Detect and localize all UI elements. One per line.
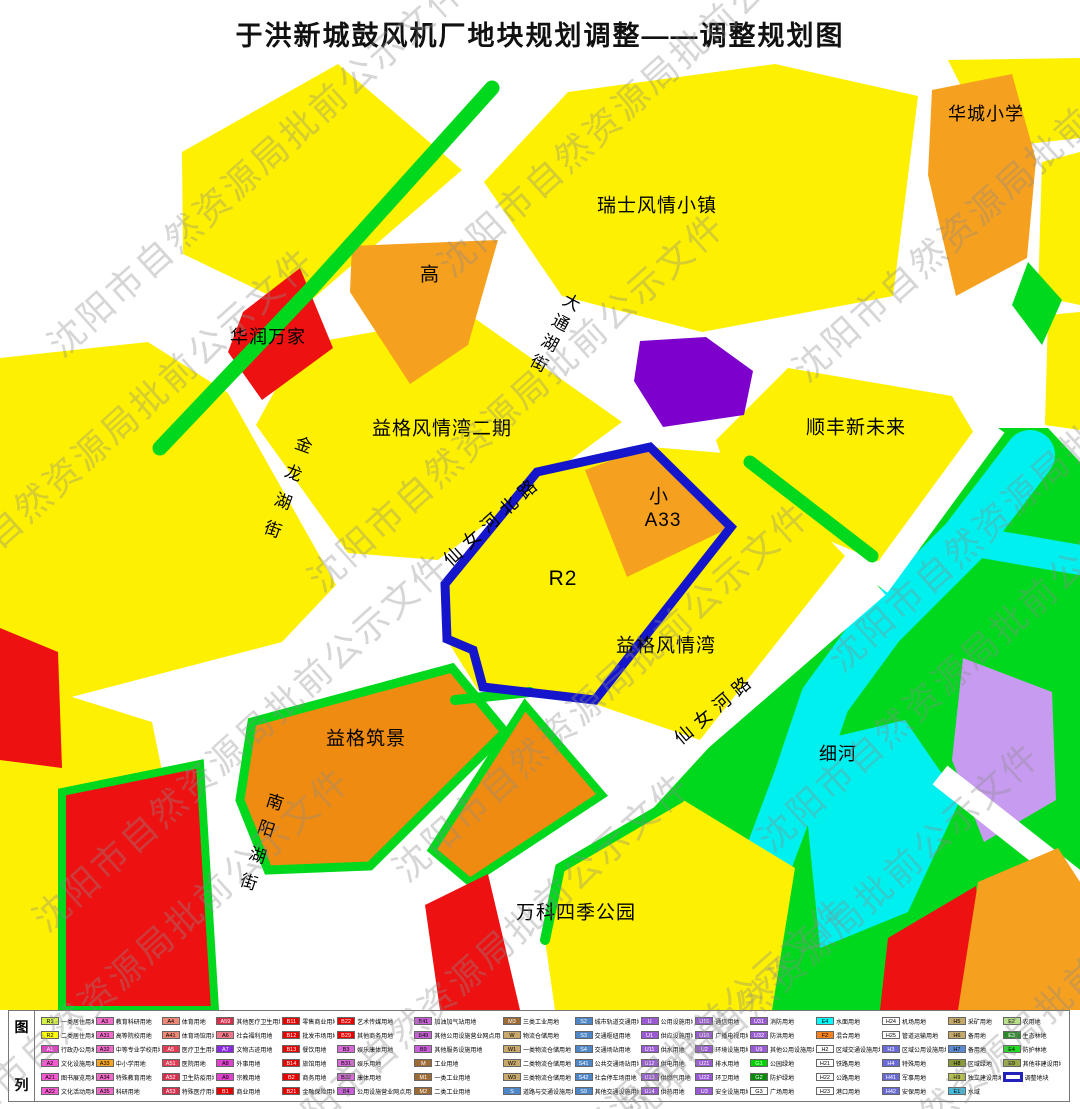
- legend-entry: S9其他交通设施用地: [575, 1084, 639, 1098]
- legend-entry: S42社会停车场用地: [575, 1070, 639, 1084]
- legend-entry: A41体育场馆用地: [162, 1028, 215, 1042]
- legend-entry: E4水面用地: [816, 1014, 880, 1028]
- legend-label: 特殊教育用地: [116, 1073, 152, 1082]
- legend-entry: A7文物古迹用地: [216, 1042, 280, 1056]
- legend-header: 图 列: [9, 1011, 35, 1101]
- legend-entry: U21排水用地: [695, 1056, 748, 1070]
- legend-entry: A5医疗卫生用地: [162, 1042, 215, 1056]
- legend-label: 防洪用地: [770, 1031, 794, 1040]
- legend-label: 城市轨道交通用地: [595, 1017, 639, 1026]
- legend-swatch: A51: [162, 1059, 180, 1067]
- legend-entry: E1水域: [948, 1084, 1001, 1098]
- label-huarun-wanjia: 华润万家: [230, 323, 306, 349]
- legend-swatch: H5: [948, 1017, 966, 1025]
- legend-label: 铁路用地: [836, 1059, 860, 1068]
- legend-entry: U公用设施用地: [641, 1014, 694, 1028]
- label-gao: 高: [420, 260, 440, 287]
- legend-label: 一类物流仓储用地: [523, 1045, 571, 1054]
- legend-label: 供应设施用地: [661, 1031, 694, 1040]
- legend-label: 文物古迹用地: [236, 1045, 272, 1054]
- legend-label: 一类居住用地: [61, 1017, 94, 1026]
- legend-label: 环境设施用地: [715, 1045, 748, 1054]
- legend-entry: A21图书展览用地: [41, 1070, 94, 1084]
- legend-label: 其他医疗卫生用地: [236, 1017, 280, 1026]
- legend-swatch: W2: [503, 1059, 521, 1067]
- legend-swatch: B49: [414, 1031, 432, 1039]
- legend-swatch: S42: [575, 1073, 593, 1081]
- legend-label: 三类物流仓储用地: [523, 1073, 571, 1082]
- legend-swatch: U16: [695, 1031, 713, 1039]
- legend-entry: B29其他商务用地: [337, 1028, 412, 1042]
- legend-entry: U2环境设施用地: [695, 1042, 748, 1056]
- legend-swatch: U15: [695, 1017, 713, 1025]
- legend-entry: H42安保用地: [882, 1084, 946, 1098]
- legend-swatch: B31: [337, 1059, 355, 1067]
- legend-label: 供燃气用地: [661, 1073, 691, 1082]
- legend-entry: U31消防用地: [750, 1014, 814, 1028]
- legend-entry: U14供热用地: [641, 1084, 694, 1098]
- legend-label: 卫生防疫用地: [182, 1073, 215, 1082]
- legend-label: 调整地块: [1025, 1073, 1049, 1082]
- legend-column-8: M3三类工业用地W物流仓储用地W1一类物流仓储用地W2二类物流仓储用地W3三类物…: [503, 1014, 573, 1099]
- legend-entry: B21金融保险用地: [282, 1084, 335, 1098]
- legend-entry: H21铁路用地: [816, 1056, 880, 1070]
- legend-label: 道路与交通设施用地: [523, 1087, 573, 1096]
- legend-entry: A33中小学用地: [96, 1056, 160, 1070]
- legend-entry: H9独立建设用地: [948, 1070, 1001, 1084]
- legend-swatch: U1: [641, 1031, 659, 1039]
- legend-swatch: B32: [337, 1073, 355, 1081]
- legend-label: 体育场馆用地: [182, 1031, 215, 1040]
- parcel-purple: [634, 337, 753, 427]
- legend-entry: A51医院用地: [162, 1056, 215, 1070]
- legend-entry: A3教育科研用地: [96, 1014, 160, 1028]
- legend-label: 医院用地: [182, 1059, 206, 1068]
- legend-label: 医疗卫生用地: [182, 1045, 215, 1054]
- legend-label: 商业用地: [236, 1087, 260, 1096]
- legend-entry: B31娱乐用地: [337, 1056, 412, 1070]
- legend-swatch: A21: [41, 1073, 59, 1081]
- legend-column-16: E2农用地E3生态林地E4防护林地E9其他非建设用地调整地块: [1003, 1014, 1061, 1099]
- legend-entry: A31高等院校用地: [96, 1028, 160, 1042]
- legend-swatch: G2: [750, 1073, 768, 1081]
- legend-swatch: B12: [282, 1031, 300, 1039]
- legend-swatch: U11: [641, 1045, 659, 1053]
- legend-entry: W3三类物流仓储用地: [503, 1070, 573, 1084]
- legend-label: 一类工业用地: [434, 1073, 470, 1082]
- legend-label: 采矿用地: [968, 1017, 992, 1026]
- legend-entry: B13餐饮用地: [282, 1042, 335, 1056]
- legend-label: 旅馆用地: [302, 1059, 326, 1068]
- legend-swatch: H42: [882, 1087, 900, 1095]
- legend-label: 物流仓储用地: [523, 1031, 559, 1040]
- legend-columns: R1一类居住用地R2二类居住用地A1行政办公用地A2文化设施用地A21图书展览用…: [35, 1011, 1069, 1101]
- legend-entry: B14旅馆用地: [282, 1056, 335, 1070]
- legend-swatch: H7: [948, 1045, 966, 1053]
- legend-entry: A4体育用地: [162, 1014, 215, 1028]
- legend-entry: H22公路用地: [816, 1070, 880, 1084]
- legend-entry: U32防洪用地: [750, 1028, 814, 1042]
- legend-swatch: F2: [816, 1031, 834, 1039]
- legend-entry: A9宗教用地: [216, 1070, 280, 1084]
- legend-label: 交通场站用地: [595, 1045, 631, 1054]
- legend-entry: M3三类工业用地: [503, 1014, 573, 1028]
- legend-entry: H4特殊用地: [882, 1056, 946, 1070]
- legend-entry: B32康体用地: [337, 1070, 412, 1084]
- legend-entry: E2农用地: [1003, 1014, 1061, 1028]
- label-ruishi-fengqing: 瑞士风情小镇: [597, 191, 717, 218]
- legend-entry: B4公用设施营业网点用地: [337, 1084, 412, 1098]
- legend-entry: S41公共交通场站用地: [575, 1056, 639, 1070]
- legend-column-3: A4体育用地A41体育场馆用地A5医疗卫生用地A51医院用地A52卫生防疫用地A…: [162, 1014, 215, 1099]
- page-title: 于洪新城鼓风机厂地块规划调整——调整规划图: [0, 14, 1080, 53]
- legend-label: 军事用地: [902, 1073, 926, 1082]
- legend-entry: U9其他公用设施用地: [750, 1042, 814, 1056]
- legend-entry: A32中等专业学校用地: [96, 1042, 160, 1056]
- legend-label: 安全设施用地: [715, 1087, 748, 1096]
- legend-label: 特殊医疗用地: [182, 1087, 215, 1096]
- legend-swatch: S2: [575, 1017, 593, 1025]
- legend: 图 列 R1一类居住用地R2二类居住用地A1行政办公用地A2文化设施用地A21图…: [8, 1010, 1070, 1102]
- legend-entry: H7备用地: [948, 1042, 1001, 1056]
- legend-entry: U13供燃气用地: [641, 1070, 694, 1084]
- legend-entry: W物流仓储用地: [503, 1028, 573, 1042]
- legend-label: 行政办公用地: [61, 1045, 94, 1054]
- legend-entry: H2区域交通设施用地: [816, 1042, 880, 1056]
- legend-swatch: R1: [41, 1017, 59, 1025]
- legend-swatch: S9: [575, 1087, 593, 1095]
- legend-entry: E9其他非建设用地: [1003, 1056, 1061, 1070]
- legend-column-7: B41加油加气站用地B49其他公用设施营业网点用地B9其他服务设施用地M工业用地…: [414, 1014, 501, 1099]
- legend-entry: E3生态林地: [1003, 1028, 1061, 1042]
- legend-column-12: U31消防用地U32防洪用地U9其他公用设施用地G1公园绿地G2防护绿地G3广场…: [750, 1014, 814, 1099]
- legend-column-10: U公用设施用地U1供应设施用地U11供水用地U12供电用地U13供燃气用地U14…: [641, 1014, 694, 1099]
- legend-label: 商务用地: [302, 1073, 326, 1082]
- legend-entry: H8区域绿地: [948, 1056, 1001, 1070]
- legend-swatch: G1: [750, 1059, 768, 1067]
- legend-label: 水面用地: [836, 1017, 860, 1026]
- legend-column-1: R1一类居住用地R2二类居住用地A1行政办公用地A2文化设施用地A21图书展览用…: [41, 1014, 94, 1099]
- legend-entry: S2城市轨道交通用地: [575, 1014, 639, 1028]
- legend-label: 公路用地: [836, 1073, 860, 1082]
- legend-entry: A52卫生防疫用地: [162, 1070, 215, 1084]
- legend-swatch: H3: [882, 1045, 900, 1053]
- legend-swatch: B1: [216, 1087, 234, 1095]
- legend-column-6: B22艺术传媒用地B29其他商务用地B3娱乐康体用地B31娱乐用地B32康体用地…: [337, 1014, 412, 1099]
- legend-label: 艺术传媒用地: [357, 1017, 393, 1026]
- legend-entry: F2混合用地: [816, 1028, 880, 1042]
- legend-swatch: U22: [695, 1073, 713, 1081]
- legend-entry: M2二类工业用地: [414, 1084, 501, 1098]
- legend-swatch: B2: [282, 1073, 300, 1081]
- legend-swatch: A1: [41, 1045, 59, 1053]
- legend-header-top: 图: [15, 1017, 29, 1037]
- legend-entry: A6社会福利用地: [216, 1028, 280, 1042]
- label-huacheng-xiaoxue: 华城小学: [948, 100, 1024, 126]
- legend-swatch: U3: [695, 1087, 713, 1095]
- legend-swatch: S3: [575, 1031, 593, 1039]
- legend-entry: A59其他医疗卫生用地: [216, 1014, 280, 1028]
- legend-label: 特殊用地: [902, 1059, 926, 1068]
- legend-swatch: M: [414, 1059, 432, 1067]
- legend-entry: U15通信用地: [695, 1014, 748, 1028]
- legend-label: 供电用地: [661, 1059, 685, 1068]
- legend-entry: B12批发市场用地: [282, 1028, 335, 1042]
- label-shunfeng: 顺丰新未来: [806, 413, 906, 440]
- legend-swatch: B13: [282, 1045, 300, 1053]
- legend-label: 防护林地: [1023, 1045, 1047, 1054]
- legend-swatch: H21: [816, 1059, 834, 1067]
- legend-swatch: H22: [816, 1073, 834, 1081]
- legend-label: 交通枢纽用地: [595, 1031, 631, 1040]
- legend-swatch: W: [503, 1031, 521, 1039]
- parcel-right-edge2: [1045, 312, 1080, 430]
- legend-entry: H3区域公用设施用地: [882, 1042, 946, 1056]
- legend-label: 排水用地: [715, 1059, 739, 1068]
- legend-swatch: A2: [41, 1059, 59, 1067]
- legend-label: 管道运输用地: [902, 1031, 938, 1040]
- legend-label: 防护绿地: [770, 1073, 794, 1082]
- legend-boundary-swatch: [1003, 1072, 1023, 1082]
- legend-swatch: M3: [503, 1017, 521, 1025]
- legend-entry: A2文化设施用地: [41, 1056, 94, 1070]
- legend-label: 二类居住用地: [61, 1031, 94, 1040]
- legend-entry: G3广场用地: [750, 1084, 814, 1098]
- legend-label: 零售商业用地: [302, 1017, 335, 1026]
- legend-entry: B41加油加气站用地: [414, 1014, 501, 1028]
- legend-label: 通信用地: [715, 1017, 739, 1026]
- legend-label: 二类工业用地: [434, 1087, 470, 1096]
- legend-swatch: B21: [282, 1087, 300, 1095]
- legend-swatch: H24: [882, 1017, 900, 1025]
- legend-entry: H23港口用地: [816, 1084, 880, 1098]
- legend-entry: M1一类工业用地: [414, 1070, 501, 1084]
- legend-swatch: A3: [96, 1017, 114, 1025]
- legend-entry: B9其他服务设施用地: [414, 1042, 501, 1056]
- legend-entry: 调整地块: [1003, 1070, 1061, 1084]
- legend-label: 供热用地: [661, 1087, 685, 1096]
- river-branch: [965, 540, 1080, 560]
- legend-label: 消防用地: [770, 1017, 794, 1026]
- legend-label: 娱乐康体用地: [357, 1045, 393, 1054]
- legend-label: 图书展览用地: [61, 1073, 94, 1082]
- legend-label: 公共交通场站用地: [595, 1059, 639, 1068]
- legend-entry: U12供电用地: [641, 1056, 694, 1070]
- legend-swatch: U32: [750, 1031, 768, 1039]
- legend-swatch: U9: [750, 1045, 768, 1053]
- legend-entry: A22文化活动用地: [41, 1084, 94, 1098]
- legend-label: 工业用地: [434, 1059, 458, 1068]
- legend-label: 娱乐用地: [357, 1059, 381, 1068]
- legend-label: 公用设施用地: [661, 1017, 694, 1026]
- label-yige2: 益格风情湾二期: [372, 414, 512, 441]
- legend-swatch: B3: [337, 1045, 355, 1053]
- legend-swatch: B14: [282, 1059, 300, 1067]
- legend-swatch: H41: [882, 1073, 900, 1081]
- legend-label: 区域绿地: [968, 1059, 992, 1068]
- legend-entry: R1一类居住用地: [41, 1014, 94, 1028]
- legend-label: 区域公用设施用地: [902, 1045, 946, 1054]
- legend-swatch: E3: [1003, 1031, 1021, 1039]
- legend-label: 外事用地: [236, 1059, 260, 1068]
- legend-label: 中等专业学校用地: [116, 1045, 160, 1054]
- legend-entry: S4交通场站用地: [575, 1042, 639, 1056]
- legend-label: 混合用地: [836, 1031, 860, 1040]
- legend-swatch: E1: [948, 1087, 966, 1095]
- legend-label: 供水用地: [661, 1045, 685, 1054]
- legend-label: 金融保险用地: [302, 1087, 335, 1096]
- legend-swatch: A34: [96, 1073, 114, 1081]
- legend-label: 康体用地: [357, 1073, 381, 1082]
- legend-column-2: A3教育科研用地A31高等院校用地A32中等专业学校用地A33中小学用地A34特…: [96, 1014, 160, 1099]
- legend-entry: H5采矿用地: [948, 1014, 1001, 1028]
- label-r2: R2: [549, 567, 578, 591]
- legend-label: 加油加气站用地: [434, 1017, 476, 1026]
- legend-entry: B2商务用地: [282, 1070, 335, 1084]
- legend-entry: S道路与交通设施用地: [503, 1084, 573, 1098]
- legend-label: 生态林地: [1023, 1031, 1047, 1040]
- legend-label: 文化活动用地: [61, 1087, 94, 1096]
- label-xihe: 细河: [819, 740, 857, 766]
- legend-label: 中小学用地: [116, 1059, 146, 1068]
- legend-swatch: U14: [641, 1087, 659, 1095]
- legend-swatch: H25: [882, 1031, 900, 1039]
- legend-swatch: B41: [414, 1017, 432, 1025]
- legend-swatch: E4: [1003, 1045, 1021, 1053]
- legend-swatch: S4: [575, 1045, 593, 1053]
- legend-swatch: A35: [96, 1087, 114, 1095]
- legend-swatch: A33: [96, 1059, 114, 1067]
- legend-swatch: H2: [816, 1045, 834, 1053]
- legend-label: 体育用地: [182, 1017, 206, 1026]
- legend-label: 安保用地: [902, 1087, 926, 1096]
- legend-entry: A53特殊医疗用地: [162, 1084, 215, 1098]
- legend-swatch: E2: [1003, 1017, 1021, 1025]
- zoning-map: [0, 0, 1080, 1109]
- label-wanke: 万科四季公园: [516, 898, 636, 925]
- legend-entry: R2二类居住用地: [41, 1028, 94, 1042]
- legend-swatch: B11: [282, 1017, 300, 1025]
- legend-swatch: A9: [216, 1073, 234, 1081]
- legend-swatch: U2: [695, 1045, 713, 1053]
- legend-swatch: B9: [414, 1045, 432, 1053]
- legend-swatch: S: [503, 1087, 521, 1095]
- legend-swatch: A52: [162, 1073, 180, 1081]
- legend-swatch: U12: [641, 1059, 659, 1067]
- label-a33: A33: [645, 510, 682, 532]
- legend-label: 文化设施用地: [61, 1059, 94, 1068]
- legend-entry: B1商业用地: [216, 1084, 280, 1098]
- legend-entry: E4防护林地: [1003, 1042, 1061, 1056]
- legend-column-13: E4水面用地F2混合用地H2区域交通设施用地H21铁路用地H22公路用地H23港…: [816, 1014, 880, 1099]
- planning-map-page: 于洪新城鼓风机厂地块规划调整——调整规划图 华城小学 瑞士风情小镇 高 华润万家…: [0, 0, 1080, 1109]
- legend-column-9: S2城市轨道交通用地S3交通枢纽用地S4交通场站用地S41公共交通场站用地S42…: [575, 1014, 639, 1099]
- legend-entry: A35科研用地: [96, 1084, 160, 1098]
- legend-swatch: A41: [162, 1031, 180, 1039]
- legend-entry: G1公园绿地: [750, 1056, 814, 1070]
- legend-entry: M工业用地: [414, 1056, 501, 1070]
- legend-swatch: A22: [41, 1087, 59, 1095]
- legend-swatch: H23: [816, 1087, 834, 1095]
- legend-label: 公用设施营业网点用地: [357, 1087, 412, 1096]
- legend-label: 农用地: [1023, 1017, 1041, 1026]
- legend-label: 港口用地: [836, 1087, 860, 1096]
- legend-swatch: B22: [337, 1017, 355, 1025]
- legend-swatch: A8: [216, 1059, 234, 1067]
- legend-swatch: A31: [96, 1031, 114, 1039]
- legend-entry: H24机场用地: [882, 1014, 946, 1028]
- legend-swatch: R2: [41, 1031, 59, 1039]
- legend-entry: W1一类物流仓储用地: [503, 1042, 573, 1056]
- parcel-red-bottomcenter: [425, 874, 520, 1010]
- legend-swatch: H6: [948, 1031, 966, 1039]
- legend-swatch: A6: [216, 1031, 234, 1039]
- legend-label: 备用地: [968, 1031, 986, 1040]
- parcel-red-bottomleft: [62, 764, 215, 1010]
- legend-label: 广场用地: [770, 1087, 794, 1096]
- legend-entry: W2二类物流仓储用地: [503, 1056, 573, 1070]
- legend-label: 社会福利用地: [236, 1031, 272, 1040]
- legend-label: 其他非建设用地: [1023, 1059, 1061, 1068]
- legend-entry: U22环卫用地: [695, 1070, 748, 1084]
- legend-label: 其他服务设施用地: [434, 1045, 482, 1054]
- legend-label: 机场用地: [902, 1017, 926, 1026]
- legend-entry: S3交通枢纽用地: [575, 1028, 639, 1042]
- label-xiao: 小: [649, 482, 669, 509]
- legend-swatch: A53: [162, 1087, 180, 1095]
- label-yigezhujing: 益格筑景: [326, 724, 406, 751]
- legend-entry: A34特殊教育用地: [96, 1070, 160, 1084]
- legend-label: 其他公用设施营业网点用地: [434, 1031, 501, 1040]
- legend-swatch: U: [641, 1017, 659, 1025]
- legend-column-4: A59其他医疗卫生用地A6社会福利用地A7文物古迹用地A8外事用地A9宗教用地B…: [216, 1014, 280, 1099]
- legend-label: 其他商务用地: [357, 1031, 393, 1040]
- legend-swatch: A32: [96, 1045, 114, 1053]
- legend-swatch: M1: [414, 1073, 432, 1081]
- legend-column-14: H24机场用地H25管道运输用地H3区域公用设施用地H4特殊用地H41军事用地H…: [882, 1014, 946, 1099]
- legend-entry: B49其他公用设施营业网点用地: [414, 1028, 501, 1042]
- legend-swatch: H4: [882, 1059, 900, 1067]
- legend-label: 其他交通设施用地: [595, 1087, 639, 1096]
- legend-swatch: E4: [816, 1017, 834, 1025]
- legend-label: 餐饮用地: [302, 1045, 326, 1054]
- legend-label: 公园绿地: [770, 1059, 794, 1068]
- legend-label: 教育科研用地: [116, 1017, 152, 1026]
- legend-entry: H41军事用地: [882, 1070, 946, 1084]
- legend-label: 其他公用设施用地: [770, 1045, 814, 1054]
- legend-swatch: A7: [216, 1045, 234, 1053]
- legend-entry: H25管道运输用地: [882, 1028, 946, 1042]
- legend-label: 区域交通设施用地: [836, 1045, 880, 1054]
- legend-label: 科研用地: [116, 1087, 140, 1096]
- legend-label: 独立建设用地: [968, 1073, 1001, 1082]
- legend-swatch: A5: [162, 1045, 180, 1053]
- legend-label: 环卫用地: [715, 1073, 739, 1082]
- legend-swatch: U21: [695, 1059, 713, 1067]
- legend-swatch: G3: [750, 1087, 768, 1095]
- legend-label: 二类物流仓储用地: [523, 1059, 571, 1068]
- legend-label: 高等院校用地: [116, 1031, 152, 1040]
- legend-entry: U3安全设施用地: [695, 1084, 748, 1098]
- legend-entry: G2防护绿地: [750, 1070, 814, 1084]
- legend-swatch: H8: [948, 1059, 966, 1067]
- legend-entry: U11供水用地: [641, 1042, 694, 1056]
- legend-entry: U16广播电视用地: [695, 1028, 748, 1042]
- legend-swatch: U13: [641, 1073, 659, 1081]
- legend-column-15: H5采矿用地H6备用地H7备用地H8区域绿地H9独立建设用地E1水域: [948, 1014, 1001, 1099]
- legend-label: 三类工业用地: [523, 1017, 559, 1026]
- legend-swatch: U31: [750, 1017, 768, 1025]
